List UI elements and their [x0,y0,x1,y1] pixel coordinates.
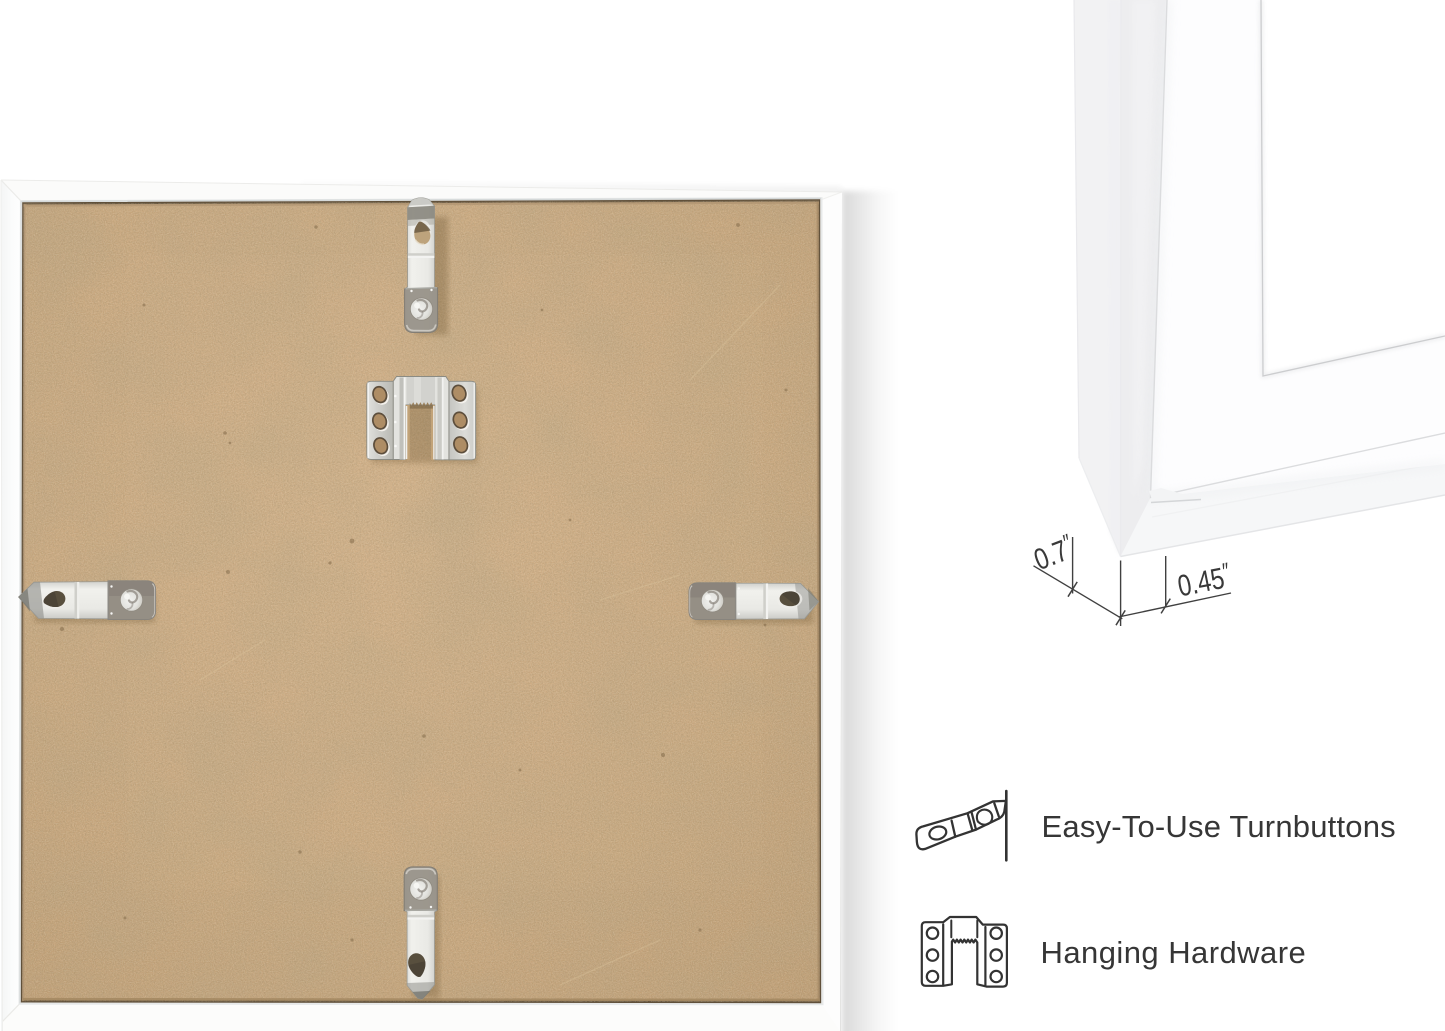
svg-text:Hanging Hardware: Hanging Hardware [1041,935,1307,970]
svg-text:Easy-To-Use Turnbuttons: Easy-To-Use Turnbuttons [1042,809,1396,844]
